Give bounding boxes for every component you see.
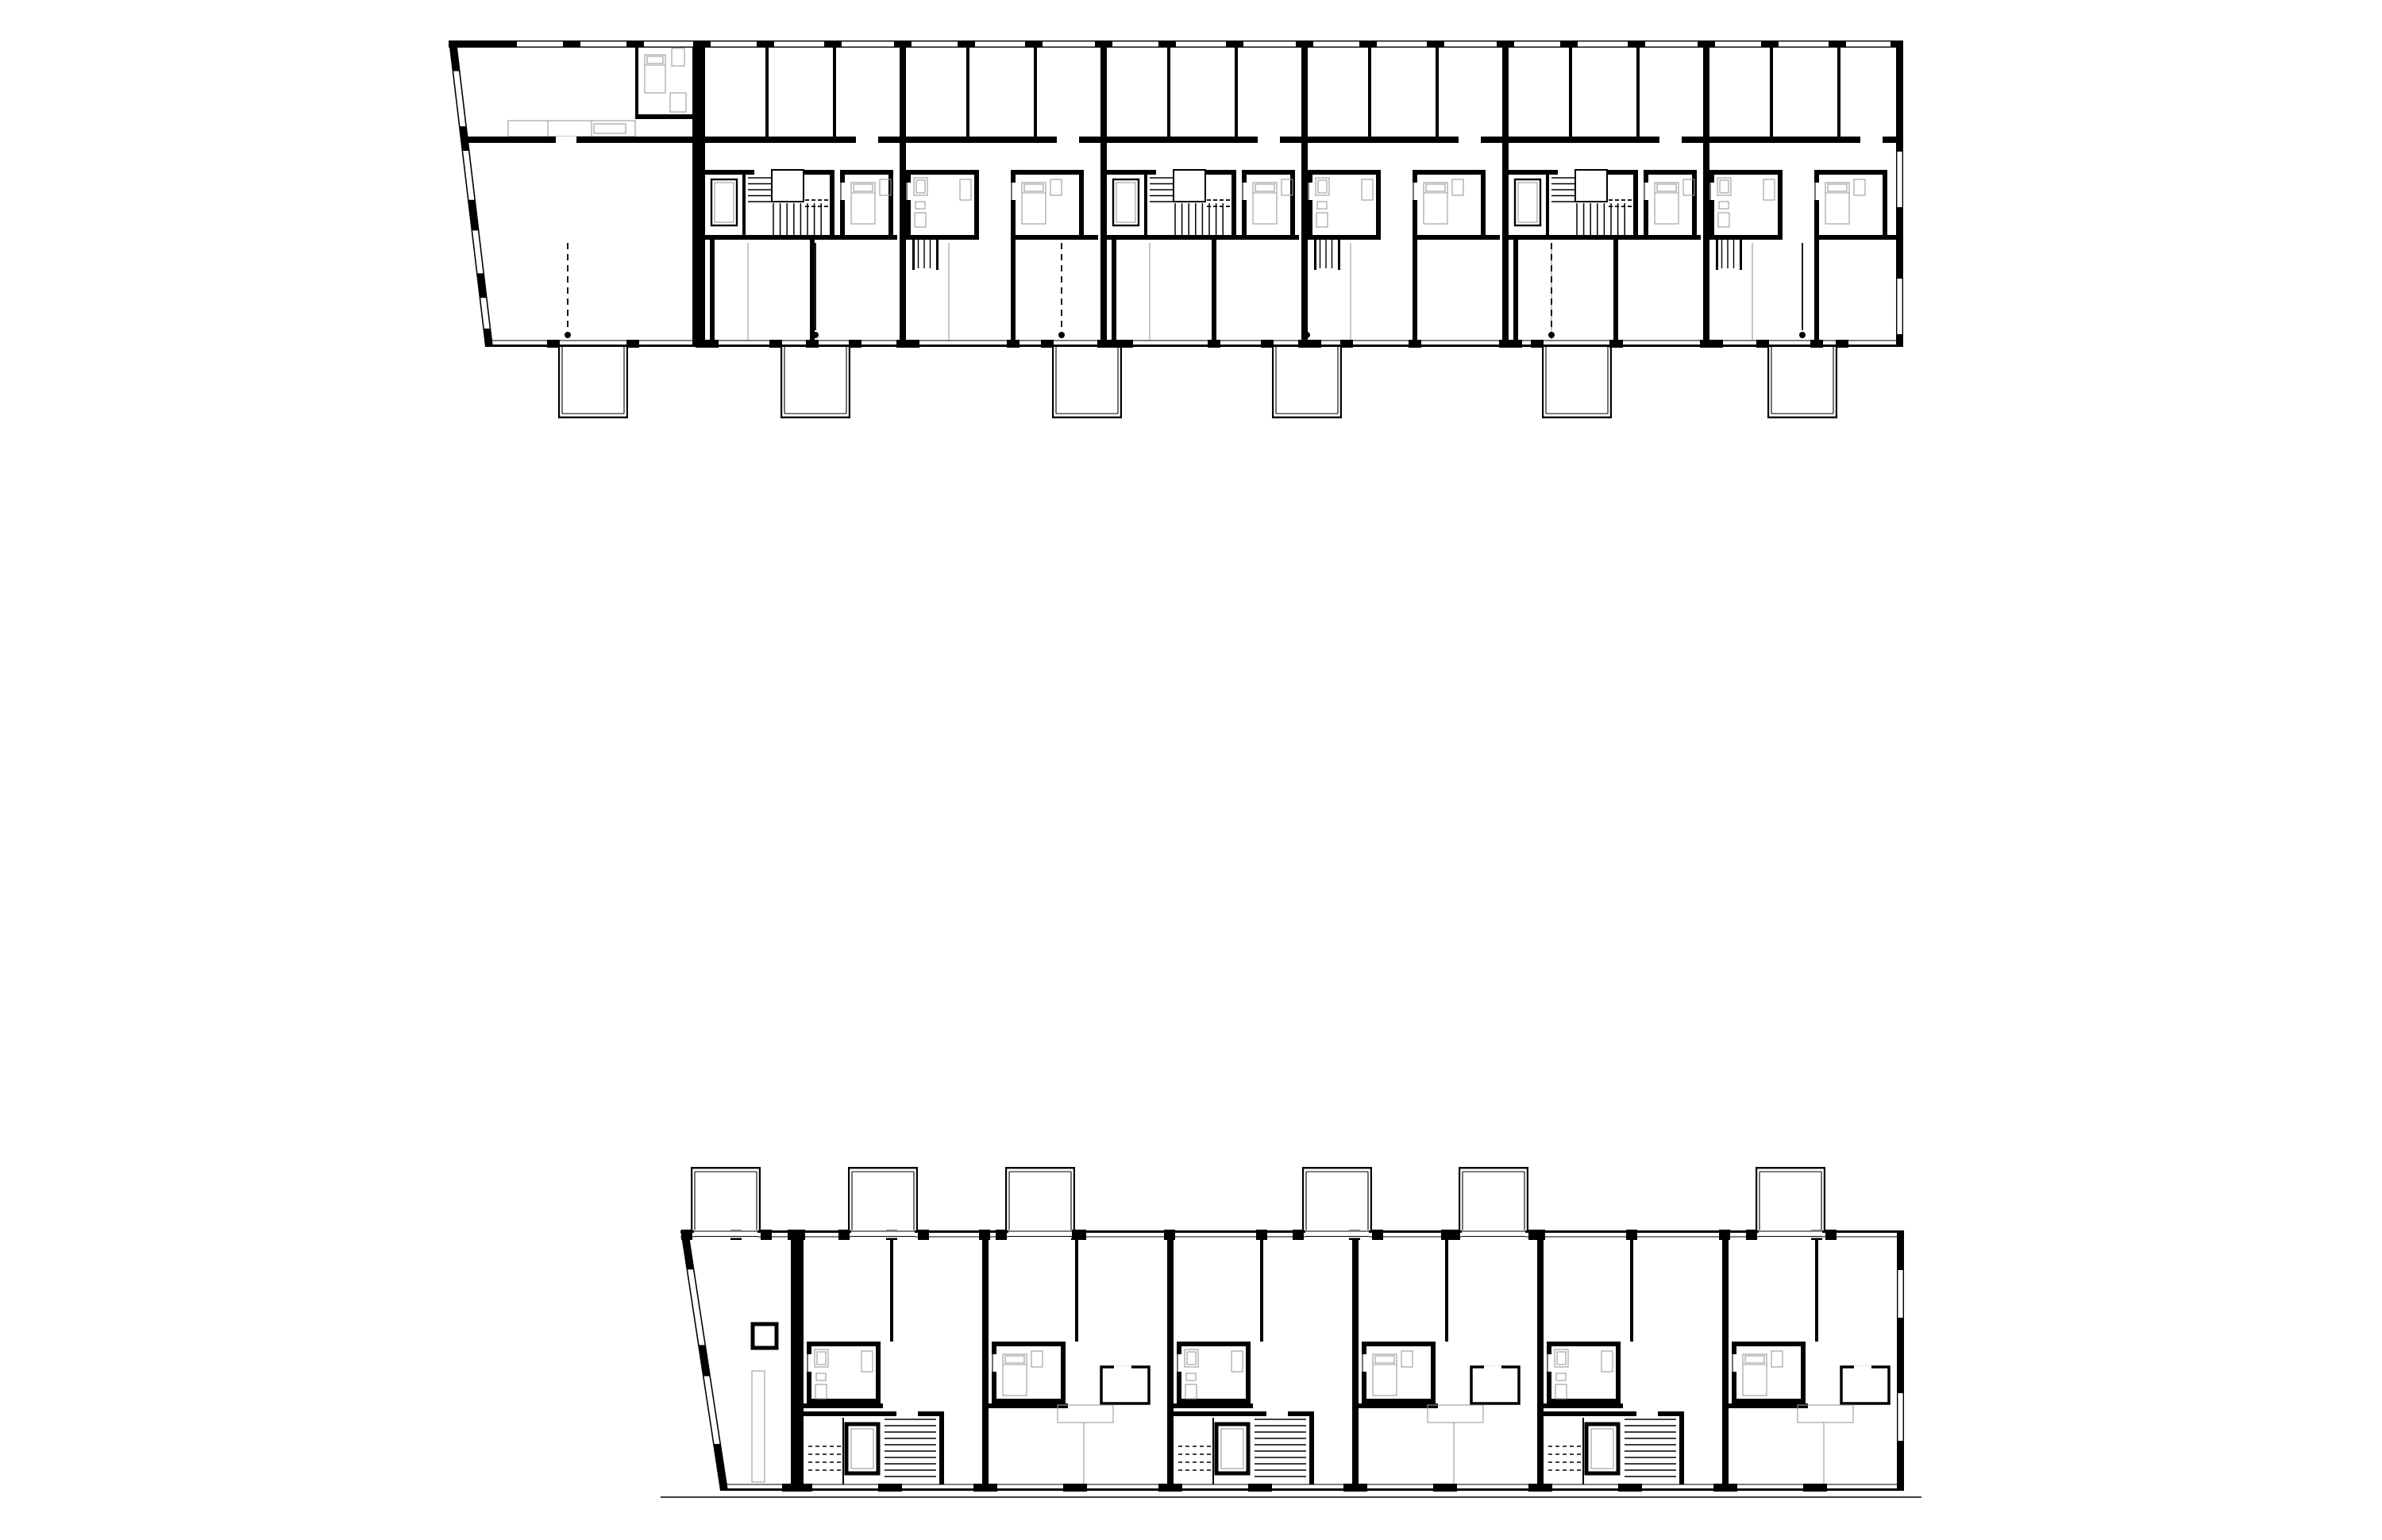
corridor-wall xyxy=(461,137,1903,143)
balcony xyxy=(691,1167,761,1230)
upper-floor-plan xyxy=(449,40,1903,418)
balcony xyxy=(1756,1167,1825,1230)
balcony xyxy=(1005,1167,1075,1230)
balcony xyxy=(1542,347,1612,418)
balcony xyxy=(781,347,850,418)
balcony xyxy=(1767,347,1837,418)
lower-floor-plan xyxy=(661,1167,1921,1497)
balcony xyxy=(848,1167,918,1230)
balcony xyxy=(558,347,628,418)
floor-plan-drawing xyxy=(0,0,2382,1540)
floor-plan-canvas xyxy=(0,0,2382,1540)
balcony xyxy=(1459,1167,1528,1230)
balcony xyxy=(1272,347,1342,418)
balcony xyxy=(1052,347,1122,418)
balcony xyxy=(1302,1167,1372,1230)
